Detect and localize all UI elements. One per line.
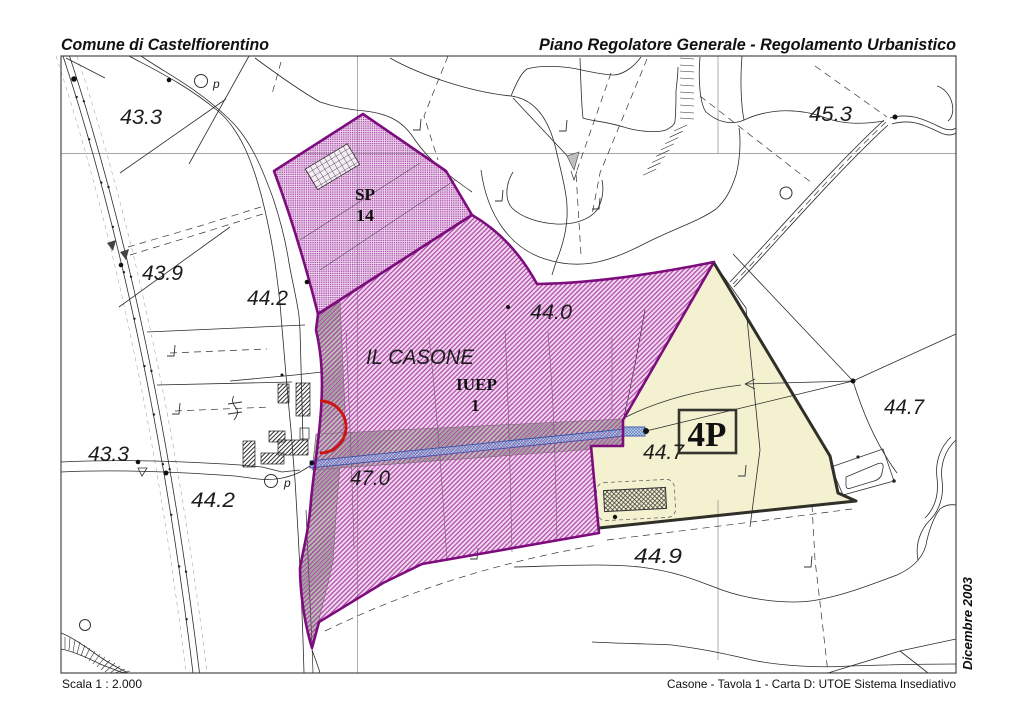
svg-text:44.2: 44.2 [247,287,288,310]
svg-text:4P: 4P [688,415,727,454]
svg-text:p: p [283,476,291,490]
svg-text:45.3: 45.3 [809,103,852,126]
svg-text:43.3: 43.3 [120,106,162,129]
svg-text:43.3: 43.3 [88,443,129,466]
svg-text:44.0: 44.0 [530,301,572,324]
svg-text:p: p [212,77,220,91]
svg-text:44.2: 44.2 [191,489,235,512]
svg-text:IUEP: IUEP [456,375,497,394]
svg-text:44.7: 44.7 [643,441,685,464]
svg-text:IL CASONE: IL CASONE [366,346,475,369]
svg-text:Dicembre 2003: Dicembre 2003 [961,577,975,670]
svg-text:44.7: 44.7 [884,396,925,419]
svg-text:Piano Regolatore Generale - Re: Piano Regolatore Generale - Regolamento … [539,36,956,54]
svg-text:SP: SP [355,185,375,204]
svg-text:44.9: 44.9 [634,545,682,568]
svg-text:Comune di Castelfiorentino: Comune di Castelfiorentino [61,36,269,54]
svg-text:Scala 1 : 2.000: Scala 1 : 2.000 [62,677,142,691]
svg-text:47.0: 47.0 [350,467,390,490]
svg-text:14: 14 [356,206,375,225]
svg-text:Casone - Tavola 1 - Carta D: U: Casone - Tavola 1 - Carta D: UTOE Sistem… [667,677,956,691]
svg-text:1: 1 [471,396,480,415]
svg-text:43.9: 43.9 [142,262,183,285]
